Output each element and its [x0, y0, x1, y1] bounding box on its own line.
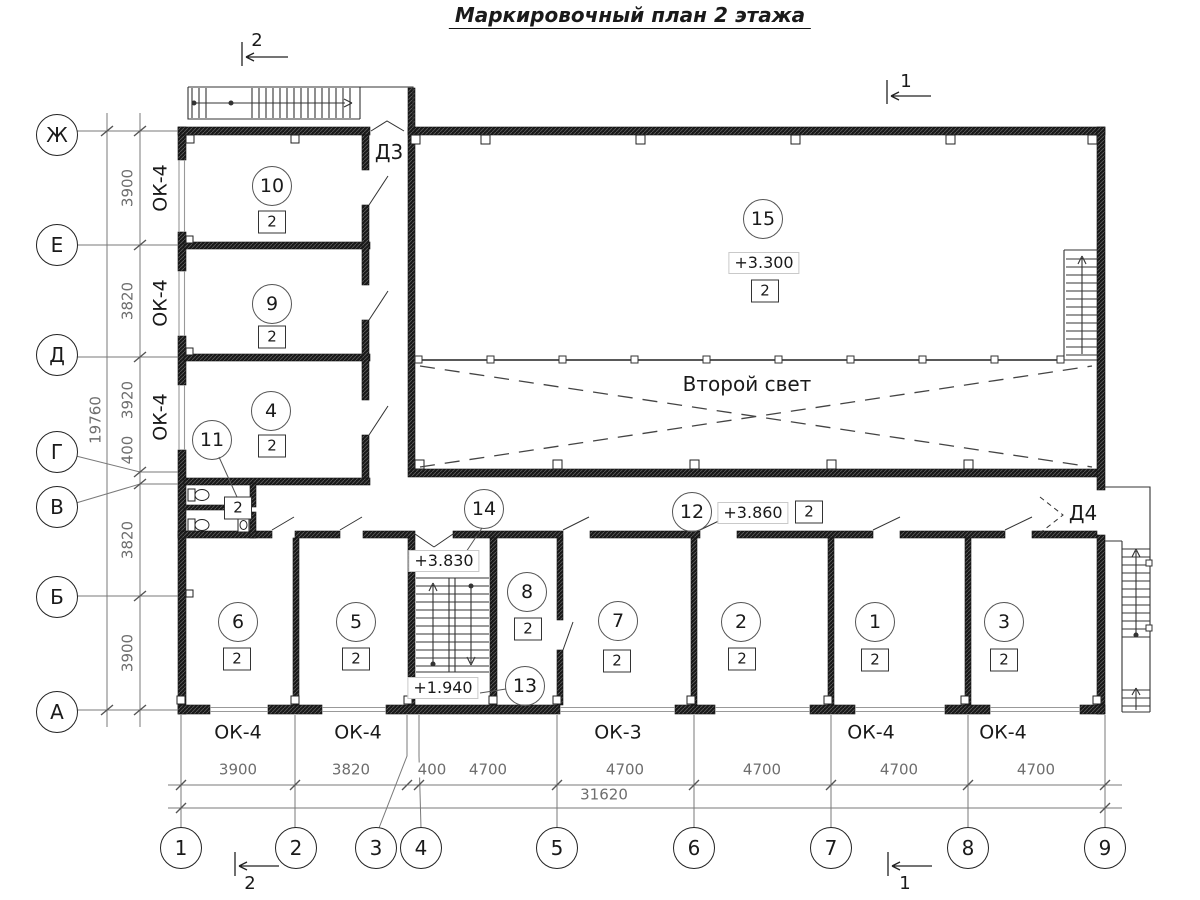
- room15-staircase: [1064, 250, 1097, 360]
- balustrade: [415, 356, 1064, 363]
- floor-plan-page: Маркировочный план 2 этажа ЖЕДГВБА123456…: [0, 0, 1200, 900]
- sink-icon: [238, 518, 249, 532]
- door-d3-leaf: [371, 121, 404, 131]
- column-markers: [177, 135, 1101, 704]
- atrium-cross-lines: [420, 366, 1092, 467]
- toilet-icon: [188, 489, 209, 501]
- main-staircase: [416, 578, 489, 672]
- door-swings: [272, 121, 1063, 650]
- toilet-icon: [188, 519, 209, 531]
- exterior-stair-east: [1105, 487, 1152, 712]
- walls: [178, 88, 1105, 714]
- section-mark-lines: [235, 42, 932, 876]
- door-d4-leaf: [1040, 497, 1063, 533]
- exterior-stair-north: [188, 87, 413, 127]
- floor-plan-drawing: [0, 0, 1200, 900]
